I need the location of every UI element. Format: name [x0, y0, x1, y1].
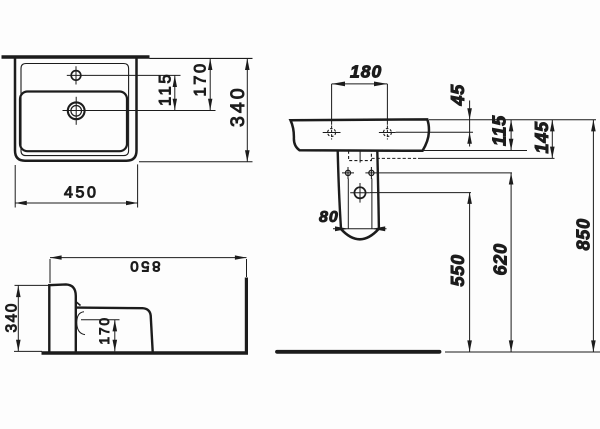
svg-text:170: 170: [192, 61, 210, 96]
svg-text:145: 145: [532, 121, 552, 154]
svg-text:340: 340: [227, 85, 249, 127]
svg-text:450: 450: [64, 185, 99, 202]
svg-text:550: 550: [448, 254, 468, 286]
svg-text:115: 115: [157, 72, 175, 106]
svg-text:620: 620: [491, 243, 511, 275]
svg-text:45: 45: [448, 84, 468, 107]
svg-text:180: 180: [350, 62, 382, 82]
svg-text:170: 170: [97, 316, 112, 345]
svg-text:850: 850: [574, 218, 594, 250]
svg-text:115: 115: [490, 115, 510, 146]
svg-text:850: 850: [128, 258, 161, 275]
svg-text:80: 80: [319, 209, 339, 226]
svg-text:340: 340: [4, 302, 21, 332]
